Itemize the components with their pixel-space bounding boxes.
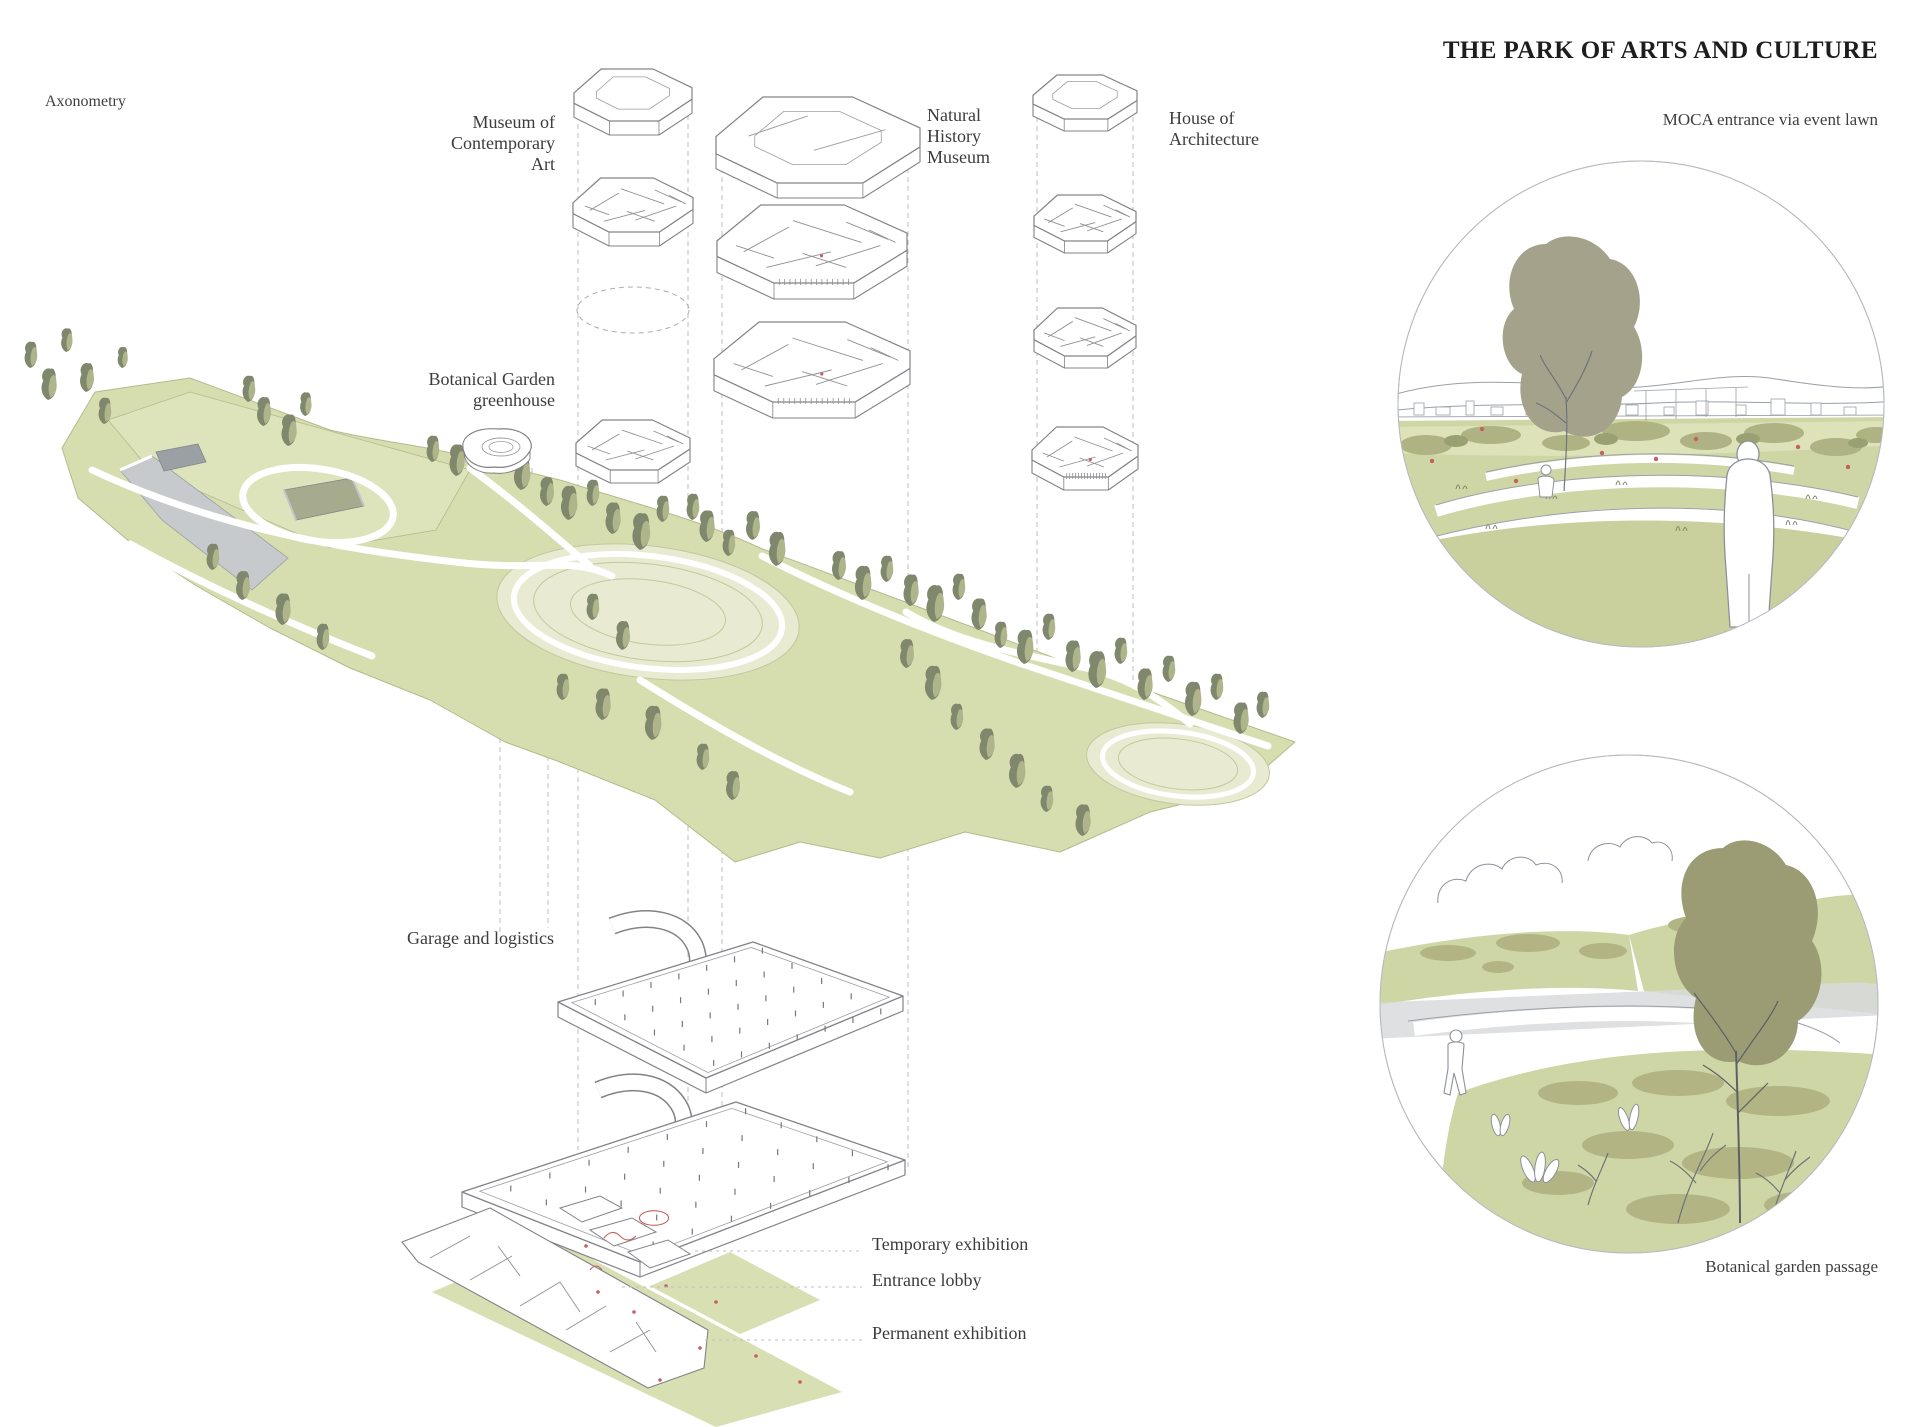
caption-botanical-passage: Botanical garden passage	[1478, 1257, 1878, 1277]
dashed-footprint	[577, 287, 689, 333]
page-title: THE PARK OF ARTS AND CULTURE	[1278, 37, 1878, 65]
exploded-plate	[574, 69, 692, 135]
exploded-plate	[573, 178, 693, 246]
axonometric-diagram	[0, 0, 1340, 1427]
vignette-moca-entrance	[1396, 159, 1886, 649]
label-garage-and-logistics: Garage and logistics	[407, 928, 554, 949]
exploded-plate	[1032, 427, 1138, 490]
label-botanical-garden-greenhouse: Botanical Garden greenhouse	[300, 369, 555, 411]
foreground-lawn	[1396, 520, 1886, 649]
exploded-plate	[717, 205, 907, 299]
exploded-plate	[576, 420, 690, 483]
garage-level	[558, 942, 903, 1093]
exploded-plate	[714, 322, 910, 418]
exploded-plate	[1034, 195, 1136, 253]
caption-moca-entrance: MOCA entrance via event lawn	[1478, 110, 1878, 130]
greenhouse	[463, 429, 531, 474]
label-entrance-lobby: Entrance lobby	[872, 1270, 981, 1291]
exploded-plate	[716, 97, 920, 198]
label-museum-of-contemporary-art: Museum of Contemporary Art	[380, 112, 555, 175]
vignette-botanical-passage	[1378, 753, 1880, 1255]
standing-figure	[1724, 441, 1774, 627]
exploded-plate	[1034, 308, 1136, 368]
label-permanent-exhibition: Permanent exhibition	[872, 1323, 1026, 1344]
label-house-of-architecture: House of Architecture	[1169, 108, 1339, 150]
label-natural-history-museum: Natural History Museum	[927, 105, 1087, 168]
presentation-board: THE PARK OF ARTS AND CULTURE Axonometry …	[0, 0, 1920, 1427]
label-temporary-exhibition: Temporary exhibition	[872, 1234, 1028, 1255]
